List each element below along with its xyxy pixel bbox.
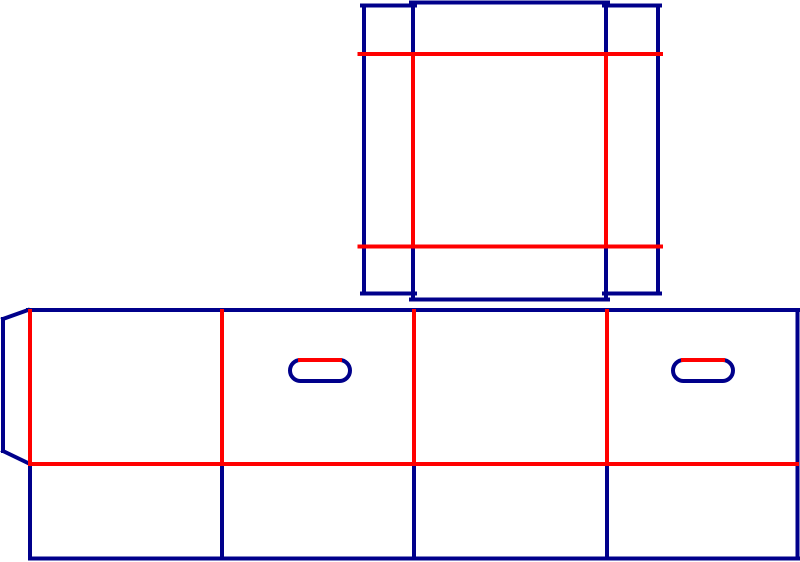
dieline-canvas: [0, 0, 800, 562]
glue-flap-top-diagonal: [3, 310, 28, 319]
handle-hole-2: [673, 360, 733, 381]
dieline-svg: [0, 0, 800, 562]
glue-flap-bottom-diagonal: [3, 451, 30, 464]
handle-hole-1: [290, 360, 350, 381]
